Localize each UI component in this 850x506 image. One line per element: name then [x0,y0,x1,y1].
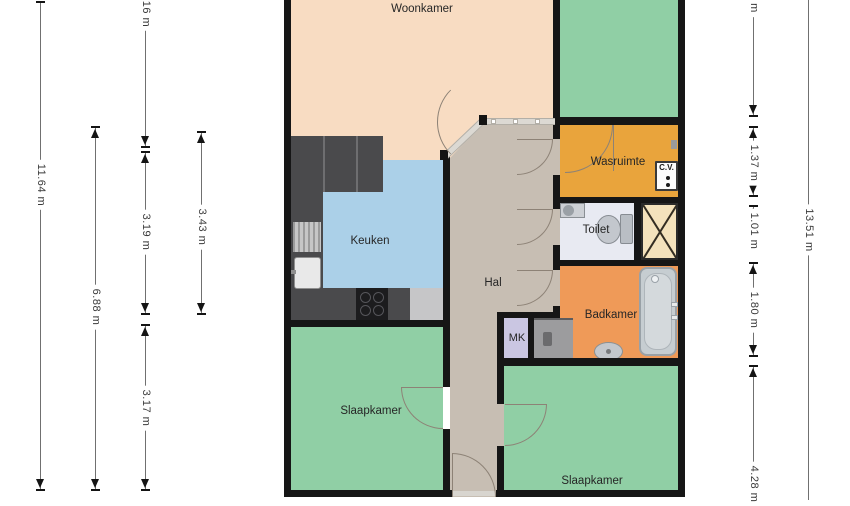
wall-hall-right [553,245,560,270]
dim-tick [141,489,150,491]
dim-tick [141,324,150,326]
wall-hall-right [553,175,560,209]
dim-tick [749,365,758,367]
dim-tick [749,262,758,264]
wall-outer-bottom [496,490,685,497]
dim-label: 3.19 m [140,210,152,255]
cv-label: C.V. [657,163,676,173]
dim-label: m [748,0,760,17]
dim-tick [749,205,758,207]
dim-label: 1.80 m [748,288,760,333]
dim-tick [141,146,150,148]
kitchen-counter-light [410,288,443,320]
door-leaf [452,453,453,497]
dim-line [753,0,754,116]
glazed-stud [513,119,518,124]
room-label-woonkamer: Woonkamer [391,3,453,15]
dim-label: 16 m [140,0,152,31]
bathtub-faucet [671,315,678,320]
cv-unit: C.V. [655,161,678,191]
kitchen-sink [294,257,321,289]
dim-label: 11.64 m [35,160,47,210]
bathtub-drain [651,275,659,283]
room-bedroom-top-right [553,0,685,124]
dim-tick [141,151,150,153]
bathtub-inner [644,273,672,350]
dim-label: 4.28 m [748,462,760,506]
wall-toilet-shaft [634,197,641,260]
dim-arrow-down [91,479,99,488]
dim-arrow-up [749,265,757,274]
dim-tick [197,313,206,315]
dim-arrow-down [749,105,757,114]
dim-tick [91,126,100,128]
kitchen-counter-top [291,136,383,192]
wall-laundry-toilet [553,197,685,203]
dim-arrow-down [197,303,205,312]
dim-arrow-up [91,129,99,138]
dim-arrow-up [197,134,205,143]
dim-label: 13.51 m [803,204,815,255]
door-leaf [517,209,553,210]
dim-arrow-down [749,345,757,354]
dim-tick [36,489,45,491]
room-label-badkamer: Badkamer [585,309,637,321]
dishwasher [293,222,321,252]
room-label-keuken: Keuken [350,235,389,247]
wall-hall-left [443,155,450,387]
dim-arrow-down [141,303,149,312]
cooktop-burner [373,292,384,303]
dim-label: 1.01 m [748,209,760,254]
wall-hall-bedroom-right [497,446,504,497]
dim-arrow-up [141,154,149,163]
dim-label: 3.43 m [196,205,208,250]
door-leaf [401,387,443,388]
wall-kitchen-bedroom [284,320,450,327]
cv-dot [666,183,670,187]
cv-dot [666,176,670,180]
kitchen-counter-divider [356,136,358,192]
bathtub-faucet [671,302,678,307]
shower-tray [534,318,573,358]
dim-tick [749,195,758,197]
glazed-stud [535,119,540,124]
radiator-valve [671,140,677,149]
cooktop-burner [360,292,371,303]
room-label-slaapkamer-right: Slaapkamer [561,475,622,487]
dim-arrow-down [141,136,149,145]
dim-arrow-down [36,479,44,488]
shower-faucet-icon [543,332,552,346]
toilet-tank [620,214,633,244]
room-label-wasruimte: Wasruimte [591,156,646,168]
dim-label: 6.88 m [90,285,102,330]
dim-arrow-up [141,327,149,336]
bathroom-sink-drain [606,349,611,354]
dim-tick [36,1,45,3]
dim-arrow-down [749,185,757,194]
door-leaf [517,270,553,271]
dim-arrow-down [141,479,149,488]
door-leaf [505,404,547,405]
room-label-mk: MK [509,332,526,344]
glazed-stud [491,119,496,124]
dim-line [40,2,41,491]
wall-bedroom-laundry [553,117,685,125]
wall-toilet-bathroom [553,260,685,266]
dim-arrow-up [749,368,757,377]
toilet-sink-bowl [563,205,574,216]
kitchen-counter-divider [323,136,325,192]
cooktop-burner [373,305,384,316]
room-label-hal: Hal [484,277,501,289]
door-leaf [517,139,553,140]
shaft [641,203,678,260]
dim-tick [141,313,150,315]
wall-outer-left [284,0,291,497]
wall-bathroom-bedroom [497,358,685,366]
dim-tick [749,126,758,128]
wall-living-bedroom [553,0,560,124]
cooktop-burner [360,305,371,316]
dim-tick [91,489,100,491]
dim-label: 1.37 m [748,141,760,186]
room-label-slaapkamer-left: Slaapkamer [340,405,401,417]
floorplan-page: { "rooms": { "woonkamer": "Woonkamer", "… [0,0,850,500]
dim-label: 3.17 m [140,386,152,431]
wall-hall-left [443,429,450,497]
dim-tick [749,355,758,357]
dim-tick [749,115,758,117]
wall-outer-bottom [284,490,452,497]
wall-outer-right [678,0,685,497]
wall-hall-right [553,124,560,139]
room-label-toilet: Toilet [583,224,610,236]
dim-tick [197,131,206,133]
wall-mk-shower [528,316,534,358]
dim-arrow-up [749,129,757,138]
kitchen-counter-left [291,192,323,320]
